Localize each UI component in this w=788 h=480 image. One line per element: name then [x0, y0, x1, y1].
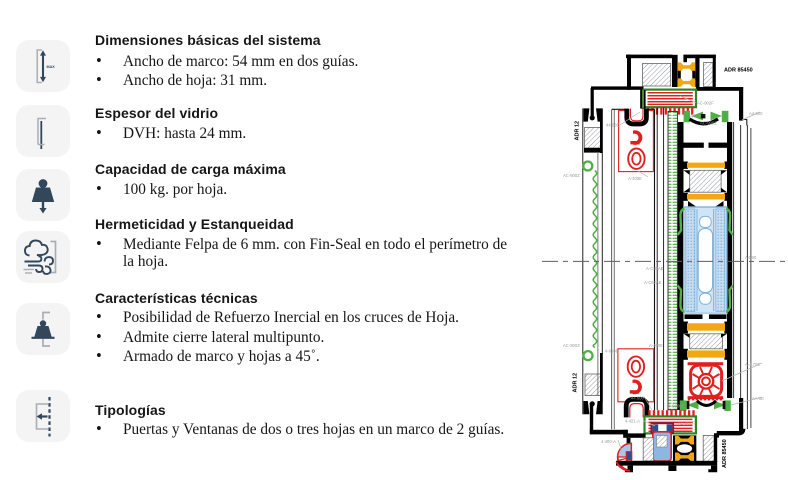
svg-text:ADR 85450: ADR 85450 — [722, 439, 728, 468]
svg-text:4-421-A: 4-421-A — [625, 418, 640, 423]
svg-text:MAX: MAX — [47, 65, 56, 69]
svg-text:A4-80: A4-80 — [690, 114, 702, 119]
svg-text:AC-999Z: AC-999Z — [700, 121, 717, 126]
svg-text:44.60E: 44.60E — [606, 123, 619, 128]
svg-text:A-400E: A-400E — [649, 343, 663, 348]
svg-text:ADR 85450: ADR 85450 — [724, 68, 753, 74]
svg-text:A-C90AE: A-C90AE — [646, 266, 664, 271]
svg-text:A-C82AE: A-C82AE — [644, 280, 662, 285]
svg-text:ADR 12: ADR 12 — [575, 121, 581, 141]
svg-text:44.600: 44.600 — [631, 396, 644, 401]
svg-text:AA-80: AA-80 — [752, 396, 764, 401]
svg-text:AC-900Z: AC-900Z — [563, 173, 580, 178]
svg-text:4-600E: 4-600E — [605, 349, 619, 354]
svg-text:4-400-A: 4-400-A — [601, 439, 616, 444]
svg-text:AC-902F: AC-902F — [678, 420, 695, 425]
svg-text:AC-902F: AC-902F — [697, 101, 714, 106]
svg-text:A4-90: A4-90 — [745, 255, 757, 260]
svg-text:4-C999E: 4-C999E — [668, 404, 685, 409]
svg-text:AC-900Z: AC-900Z — [563, 343, 580, 348]
svg-text:A-400E: A-400E — [628, 176, 642, 181]
svg-text:ADR 12: ADR 12 — [573, 373, 579, 393]
